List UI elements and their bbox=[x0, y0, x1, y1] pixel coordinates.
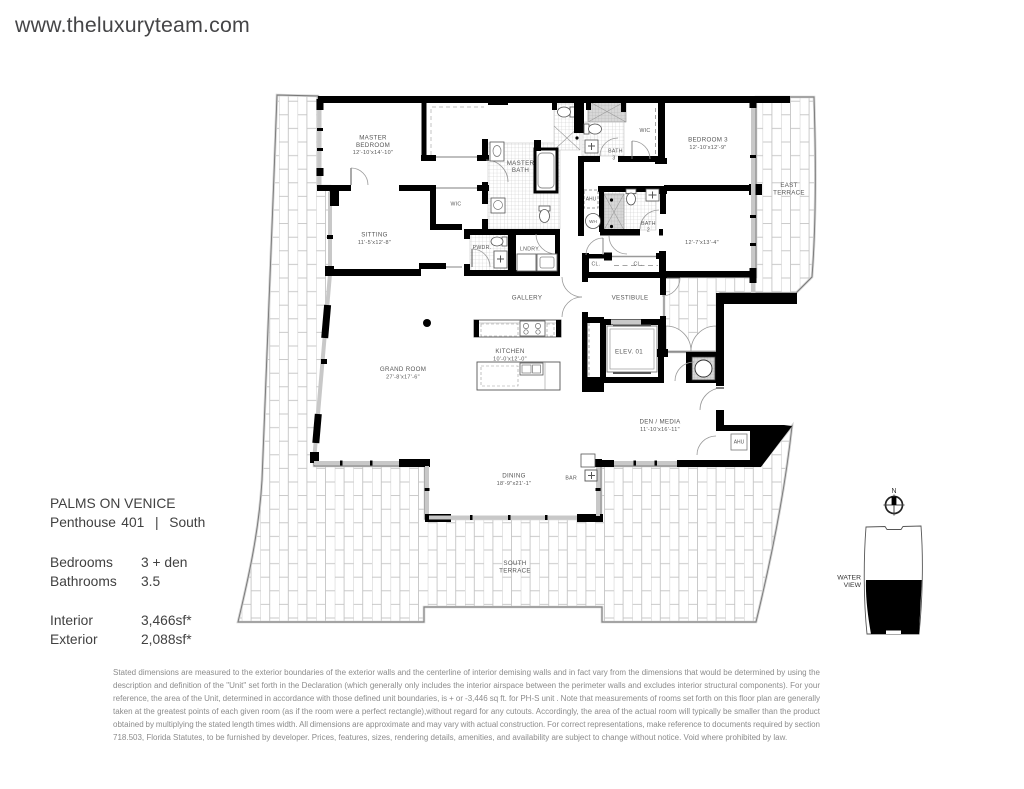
svg-text:TERRACE: TERRACE bbox=[499, 568, 531, 575]
svg-text:BEDROOM: BEDROOM bbox=[356, 142, 390, 149]
svg-text:2: 2 bbox=[647, 228, 650, 234]
svg-text:ELEV. 01: ELEV. 01 bbox=[615, 349, 643, 356]
svg-text:KITCHEN: KITCHEN bbox=[495, 348, 524, 355]
svg-text:BAR: BAR bbox=[565, 476, 577, 482]
svg-text:PWDR.: PWDR. bbox=[473, 245, 492, 251]
svg-text:BATH: BATH bbox=[608, 149, 623, 155]
svg-text:AHU: AHU bbox=[586, 197, 597, 203]
svg-text:WIC: WIC bbox=[451, 202, 462, 208]
svg-text:VESTIBULE: VESTIBULE bbox=[612, 295, 649, 302]
svg-text:3: 3 bbox=[612, 156, 615, 162]
svg-text:WATER: WATER bbox=[837, 575, 861, 582]
svg-text:GALLERY: GALLERY bbox=[512, 295, 543, 302]
svg-text:DINING: DINING bbox=[502, 473, 525, 480]
svg-text:LNDRY.: LNDRY. bbox=[520, 247, 540, 253]
svg-text:11'-5'x12'-8": 11'-5'x12'-8" bbox=[358, 240, 391, 246]
svg-text:VIEW: VIEW bbox=[844, 582, 862, 589]
svg-text:12'-7'x13'-4": 12'-7'x13'-4" bbox=[685, 240, 719, 246]
svg-text:WH: WH bbox=[589, 219, 597, 224]
svg-text:EAST: EAST bbox=[780, 182, 797, 189]
svg-text:10'-0'x12'-0": 10'-0'x12'-0" bbox=[493, 357, 527, 363]
svg-text:GRAND ROOM: GRAND ROOM bbox=[380, 366, 426, 373]
svg-text:SOUTH: SOUTH bbox=[503, 560, 526, 567]
svg-text:11'-10'x16'-11": 11'-10'x16'-11" bbox=[640, 427, 680, 433]
svg-text:BATH: BATH bbox=[512, 167, 529, 174]
svg-text:CL.: CL. bbox=[634, 262, 643, 268]
svg-text:12'-10'x12'-9": 12'-10'x12'-9" bbox=[689, 145, 726, 151]
svg-text:MASTER: MASTER bbox=[507, 160, 535, 167]
svg-text:BEDROOM 3: BEDROOM 3 bbox=[688, 137, 728, 144]
svg-text:DEN / MEDIA: DEN / MEDIA bbox=[639, 419, 681, 426]
svg-text:SITTING: SITTING bbox=[361, 232, 388, 239]
svg-text:MASTER: MASTER bbox=[359, 135, 387, 142]
svg-text:12'-10'x14'-10": 12'-10'x14'-10" bbox=[353, 150, 394, 156]
svg-text:18'-9"x21'-1": 18'-9"x21'-1" bbox=[497, 481, 532, 487]
svg-text:CL.: CL. bbox=[592, 262, 601, 268]
svg-text:N: N bbox=[891, 488, 896, 495]
svg-text:WIC: WIC bbox=[640, 128, 651, 134]
svg-text:TERRACE: TERRACE bbox=[773, 190, 805, 197]
svg-text:BATH: BATH bbox=[641, 221, 656, 227]
svg-text:AHU: AHU bbox=[734, 440, 745, 446]
svg-text:27'-8'x17'-6": 27'-8'x17'-6" bbox=[386, 375, 420, 381]
